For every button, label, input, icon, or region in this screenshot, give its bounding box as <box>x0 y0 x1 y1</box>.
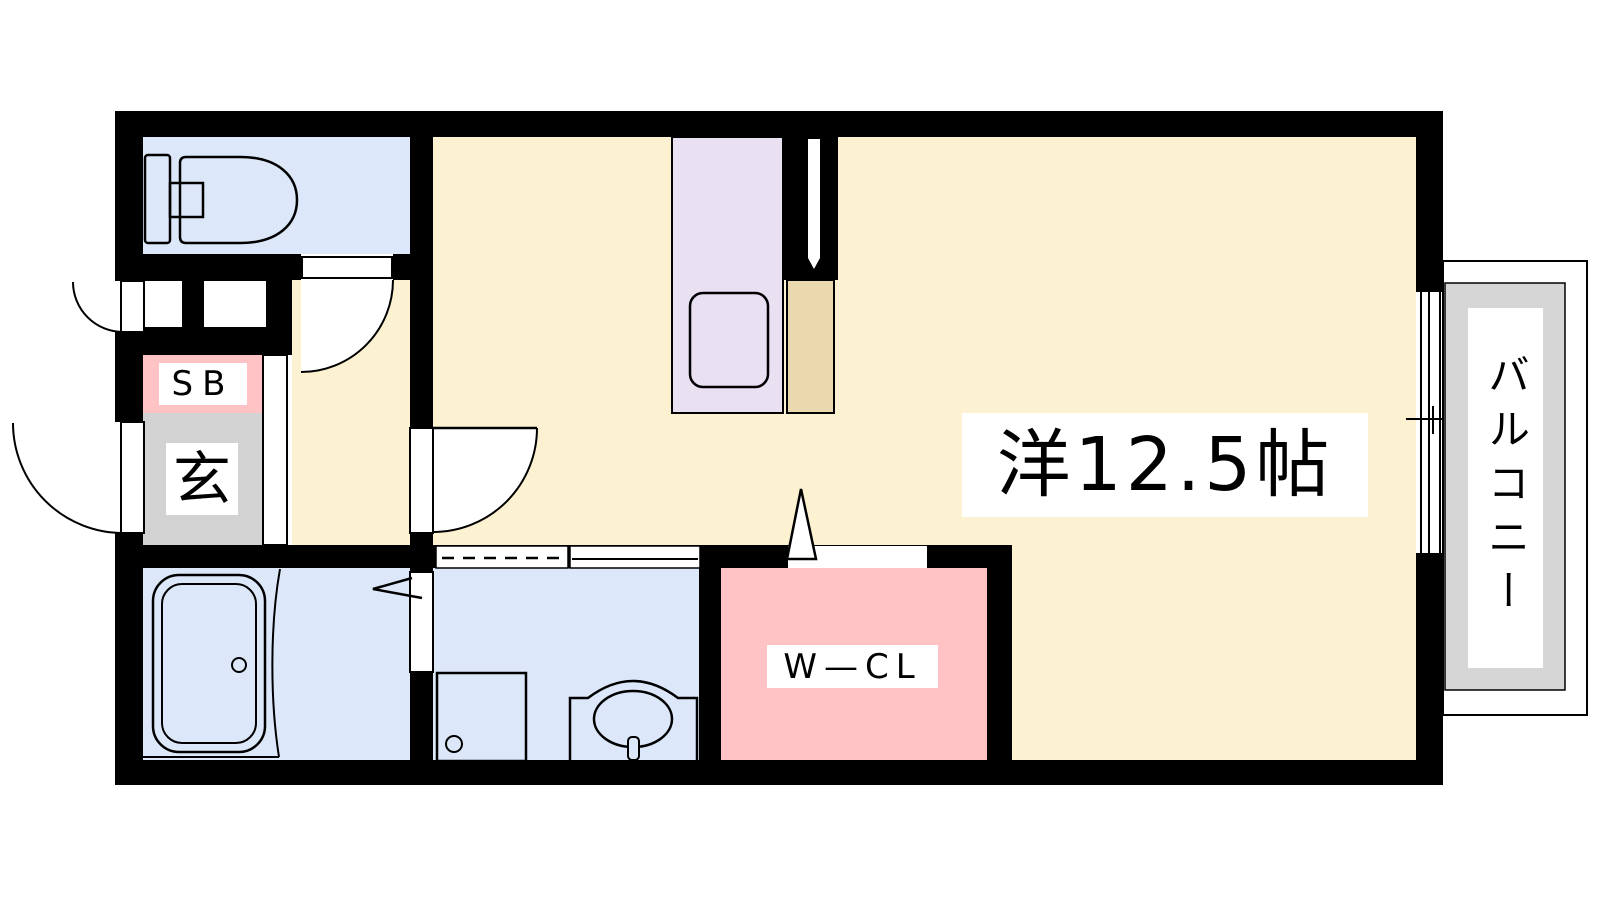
wall-bottom <box>115 760 1443 785</box>
duct-slit <box>808 139 820 258</box>
room-washroom <box>433 568 699 760</box>
meter-box-2 <box>203 280 267 328</box>
washbasin-faucet <box>628 737 639 760</box>
walk-in-closet-label: W—CL <box>767 645 938 688</box>
living-door-gap <box>410 428 433 533</box>
main-room-label: 洋12.5帖 <box>962 413 1368 517</box>
kitchen-counter <box>672 137 783 413</box>
meter-box-1 <box>144 280 183 328</box>
wall-wcl-left <box>699 568 721 760</box>
genkan-step <box>263 355 287 545</box>
room-toilet <box>143 137 410 254</box>
entrance-door-leaf <box>121 422 144 533</box>
service-door-leaf <box>121 281 144 332</box>
balcony-label: バルコニー <box>1468 308 1543 668</box>
floor-plan-page: 洋12.5帖 W—CL SB 玄 バルコニー <box>0 0 1600 900</box>
shoebox-label: SB <box>159 363 247 405</box>
washroom-sliding-panel <box>570 546 700 568</box>
wall-wcl-right <box>987 545 1012 760</box>
refrigerator-space <box>787 280 834 413</box>
wall-top <box>115 111 1443 137</box>
toilet-door-leaf <box>302 257 392 278</box>
genkan-label: 玄 <box>166 443 238 515</box>
bathroom-door-gap <box>410 572 433 672</box>
